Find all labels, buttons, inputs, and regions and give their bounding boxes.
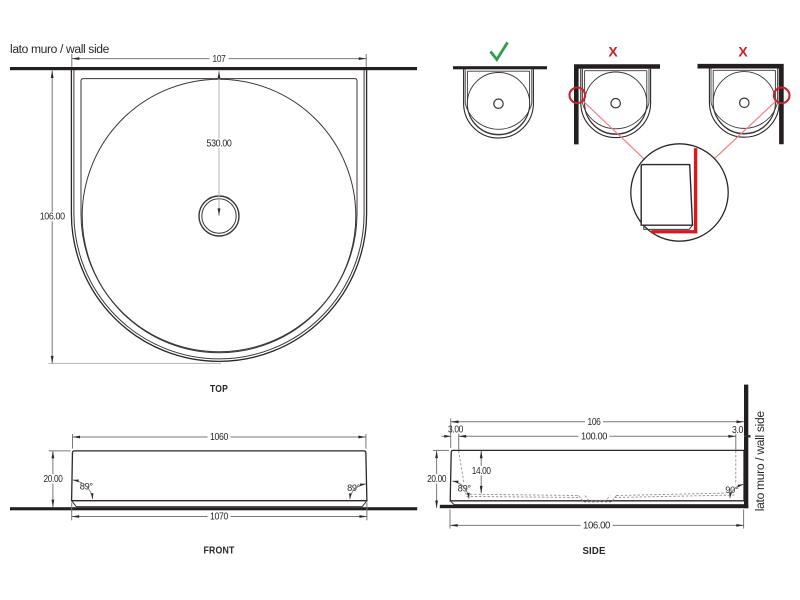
- svg-text:100.00: 100.00: [581, 432, 608, 443]
- svg-text:SIDE: SIDE: [583, 545, 606, 557]
- svg-text:106.00: 106.00: [583, 521, 611, 532]
- svg-text:20.00: 20.00: [427, 474, 447, 485]
- svg-text:107: 107: [213, 54, 227, 65]
- svg-text:14.00: 14.00: [472, 466, 492, 477]
- svg-text:FRONT: FRONT: [204, 545, 235, 557]
- svg-text:X: X: [738, 44, 748, 60]
- svg-text:90°: 90°: [725, 485, 739, 495]
- svg-text:20.00: 20.00: [44, 474, 64, 485]
- svg-text:530.00: 530.00: [207, 138, 233, 149]
- svg-text:89°: 89°: [347, 483, 361, 493]
- svg-text:X: X: [608, 44, 618, 60]
- svg-text:3.0: 3.0: [732, 425, 744, 436]
- svg-text:lato muro / wall side: lato muro / wall side: [755, 411, 767, 511]
- svg-text:TOP: TOP: [210, 383, 228, 395]
- svg-text:3.00: 3.00: [448, 425, 464, 436]
- svg-text:1060: 1060: [210, 432, 229, 443]
- svg-text:106: 106: [588, 417, 602, 428]
- svg-text:1070: 1070: [210, 512, 229, 523]
- svg-text:106.00: 106.00: [40, 212, 66, 223]
- svg-text:lato muro / wall side: lato muro / wall side: [10, 44, 109, 56]
